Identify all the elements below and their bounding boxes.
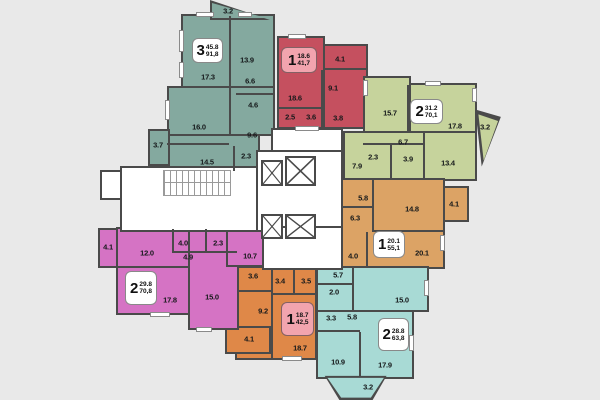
entrance-porch <box>100 170 122 200</box>
wall <box>352 268 354 310</box>
window <box>196 327 212 332</box>
wall <box>271 268 273 358</box>
wall <box>359 332 361 377</box>
room-area-label: 4.9 <box>183 253 193 262</box>
room-area-label: 2.3 <box>213 239 223 248</box>
apartment-label-2-pink: 2 29.870,8 <box>125 271 157 305</box>
room-area-label: 10.9 <box>331 358 345 367</box>
room-area-label: 5.8 <box>347 313 357 322</box>
apartment-number: 1 <box>287 312 295 327</box>
window <box>282 356 302 361</box>
window <box>472 88 477 102</box>
room-area-label: 3.7 <box>153 141 163 150</box>
room-area-label: 6.6 <box>245 77 255 86</box>
area-living: 20.1 <box>387 238 400 245</box>
area-total: 42,5 <box>296 319 309 326</box>
room-area-label: 3.6 <box>306 113 316 122</box>
staircase <box>163 170 231 196</box>
apartment-label-1-orange-bottom: 1 18.742,5 <box>281 302 314 336</box>
room-area-label: 5.7 <box>333 271 343 280</box>
wall <box>277 107 323 109</box>
elevator-shaft <box>261 160 283 186</box>
window <box>288 34 306 39</box>
room-area-label: 15.0 <box>205 293 219 302</box>
window <box>165 100 170 120</box>
apartment-number: 2 <box>130 281 138 296</box>
room-area-label: 12.0 <box>140 249 154 258</box>
elevator-shaft <box>285 156 316 186</box>
room-area-label: 14.8 <box>405 205 419 214</box>
elevator-cross-icon <box>263 162 281 184</box>
wall <box>342 206 372 208</box>
window <box>179 62 184 78</box>
room-area-label: 3.8 <box>333 114 343 123</box>
room-area-label: 17.9 <box>378 361 392 370</box>
window <box>150 312 170 317</box>
room-area-label: 3.4 <box>275 277 285 286</box>
area-total: 91,8 <box>206 51 219 58</box>
area-living: 28.8 <box>392 328 405 335</box>
area-total: 70,1 <box>425 112 438 119</box>
room-area-label: 18.7 <box>293 344 307 353</box>
window <box>440 235 445 251</box>
window <box>425 81 441 86</box>
wall <box>167 143 229 145</box>
elevator-shaft <box>261 214 283 239</box>
room-area-label: 9.1 <box>328 84 338 93</box>
window <box>295 126 319 131</box>
room-area-label: 6.3 <box>350 214 360 223</box>
wall <box>407 85 409 131</box>
apartment-number: 2 <box>383 327 391 342</box>
area-total: 63,8 <box>392 335 405 342</box>
room-area-label: 6.7 <box>398 138 408 147</box>
room-area-label: 3.2 <box>223 7 233 16</box>
wall <box>423 133 425 179</box>
room-area-label: 13.9 <box>240 56 254 65</box>
room-area-label: 3.3 <box>326 314 336 323</box>
window <box>196 12 214 17</box>
room-area-label: 4.0 <box>348 252 358 261</box>
elevator-shaft <box>285 214 316 239</box>
wall <box>118 266 190 268</box>
wall <box>233 146 235 171</box>
wall <box>372 180 374 232</box>
apartment-number: 1 <box>288 53 296 68</box>
window <box>409 335 414 351</box>
wall <box>366 232 368 267</box>
wall <box>390 145 392 179</box>
window <box>179 30 184 52</box>
wall <box>318 330 360 332</box>
room-area-label: 9.6 <box>247 131 257 140</box>
room-area-label: 2.0 <box>329 288 339 297</box>
wall <box>205 229 207 253</box>
room-area-label: 3.9 <box>403 155 413 164</box>
room-area-label: 17.3 <box>201 73 215 82</box>
wall <box>325 68 366 70</box>
room-area-label: 2.3 <box>241 152 251 161</box>
wall <box>172 229 174 253</box>
wall <box>237 290 271 292</box>
staircase-midline <box>163 182 231 183</box>
floor-plan: 3.217.313.96.64.616.09.63.714.52.34.19.1… <box>0 0 600 400</box>
apartment-number: 3 <box>197 43 205 58</box>
room-area-label: 16.0 <box>192 123 206 132</box>
room-area-label: 14.5 <box>200 158 214 167</box>
elevator-cross-icon <box>287 216 314 237</box>
room-area-label: 3.2 <box>363 383 373 392</box>
room-area-label: 4.6 <box>248 101 258 110</box>
window <box>238 12 252 17</box>
apartment-region-green <box>363 76 411 133</box>
wall <box>229 88 231 134</box>
area-total: 70,8 <box>139 288 152 295</box>
room-area-label: 4.1 <box>449 200 459 209</box>
area-living: 18.6 <box>297 53 310 60</box>
room-area-label: 15.0 <box>395 296 409 305</box>
room-area-label: 4.1 <box>244 335 254 344</box>
wall <box>293 270 295 293</box>
room-area-label: 4.1 <box>103 243 113 252</box>
room-area-label: 7.9 <box>352 162 362 171</box>
room-area-label: 17.8 <box>448 122 462 131</box>
apartment-number: 2 <box>416 104 424 119</box>
apartment-label-1-orange-mid: 1 20.155,1 <box>373 231 405 258</box>
wall <box>273 293 315 295</box>
room-area-label: 4.0 <box>178 239 188 248</box>
room-area-label: 20.1 <box>415 249 429 258</box>
window <box>424 280 429 296</box>
apartment-label-1-red: 1 18.641,7 <box>281 47 317 73</box>
room-area-label: 4.1 <box>335 55 345 64</box>
area-living: 29.8 <box>139 281 152 288</box>
room-area-label: 9.2 <box>258 307 268 316</box>
room-area-label: 5.8 <box>358 194 368 203</box>
apartment-label-2-cyan: 2 28.863,8 <box>378 318 409 351</box>
room-area-label: 3.5 <box>301 277 311 286</box>
wall <box>236 93 275 95</box>
room-area-label: 2.3 <box>368 153 378 162</box>
apartment-label-2-green: 2 31.270,1 <box>410 99 443 124</box>
apartment-label-3: 3 45.891,8 <box>192 38 223 63</box>
elevator-cross-icon <box>287 158 314 184</box>
wall <box>321 70 323 127</box>
wall <box>363 143 425 145</box>
room-area-label: 13.4 <box>441 159 455 168</box>
wall <box>229 16 231 86</box>
area-living: 31.2 <box>425 105 438 112</box>
room-area-label: 3.6 <box>248 272 258 281</box>
elevator-cross-icon <box>263 216 281 237</box>
area-total: 55,1 <box>387 245 400 252</box>
window <box>363 80 368 96</box>
area-living: 45.8 <box>206 44 219 51</box>
area-living: 18.7 <box>296 312 309 319</box>
wall <box>318 283 352 285</box>
apartment-number: 1 <box>378 237 386 252</box>
room-area-label: 17.8 <box>163 296 177 305</box>
room-area-label: 15.7 <box>383 109 397 118</box>
room-area-label: 18.6 <box>288 94 302 103</box>
area-total: 41,7 <box>297 60 310 67</box>
room-area-label: 3.2 <box>480 123 490 132</box>
room-area-label: 10.7 <box>243 252 257 261</box>
room-area-label: 2.5 <box>285 113 295 122</box>
